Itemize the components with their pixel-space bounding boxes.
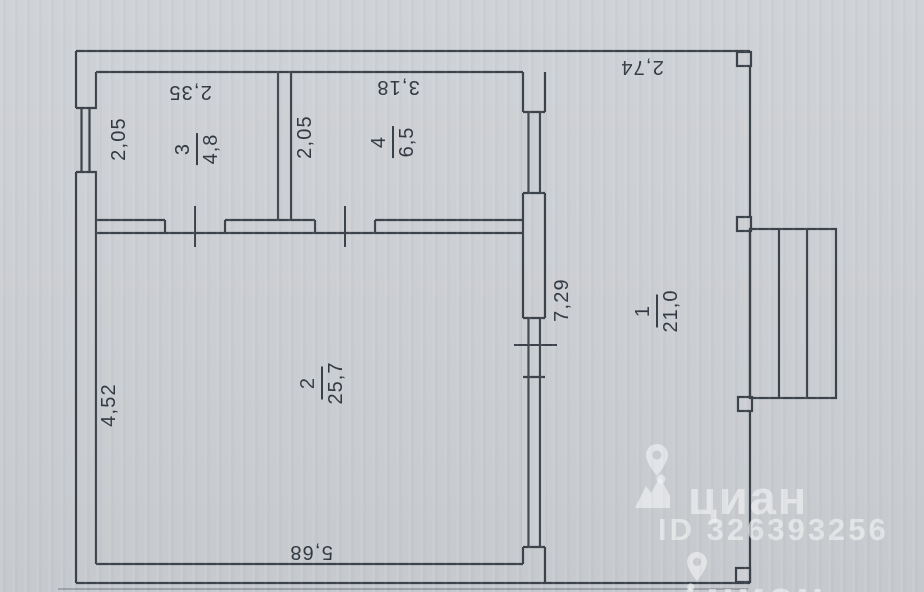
room4-area: 6,5 [394,127,417,158]
interior-wall [96,220,523,233]
watermark-brand-bottom: циан [706,574,826,592]
room3-number-area: 3 4,8 [173,133,221,165]
room3-number: 3 [173,133,198,165]
partition-wall-3-4 [278,72,291,220]
room2-height-dimension: 4,52 [99,383,119,427]
room4-height-dimension: 2,05 [295,115,315,159]
room1-number-area: 1 21,0 [633,290,681,333]
room2-area: 25,7 [323,362,346,405]
room4-width-dimension: 3,18 [376,77,420,97]
room1-area: 21,0 [658,290,681,333]
window-room2-veranda [514,318,557,547]
watermark-listing-id: ID 326393256 [658,514,889,545]
room3-area: 4,8 [198,134,221,165]
cian-logo-icon [634,474,672,510]
window-room3 [75,108,97,172]
room3-height-dimension: 2,05 [109,117,129,161]
inner-wall-faces [96,72,545,582]
room1-number: 1 [633,295,658,327]
room2-number-area: 2 25,7 [298,362,346,405]
room4-number: 4 [369,126,394,158]
room4-number-area: 4 6,5 [369,126,417,158]
room3-width-dimension: 2,35 [168,82,212,102]
window-room4 [522,112,546,193]
room1-height-dimension: 7,29 [552,278,572,322]
map-pin-icon [646,444,668,476]
room2-number: 2 [298,367,323,399]
porch-steps [750,229,836,398]
map-pin-icon-bottom [687,552,707,581]
axis-ticks [195,206,345,247]
room2-width-dimension: 5,68 [289,542,333,562]
cian-logo-icon-bottom [668,583,700,592]
room1-width-dimension: 2,74 [620,57,664,77]
floorplan-scan: 2,35 2,05 3 4,8 3,18 2,05 4 6,5 2,74 7,2… [0,0,924,592]
